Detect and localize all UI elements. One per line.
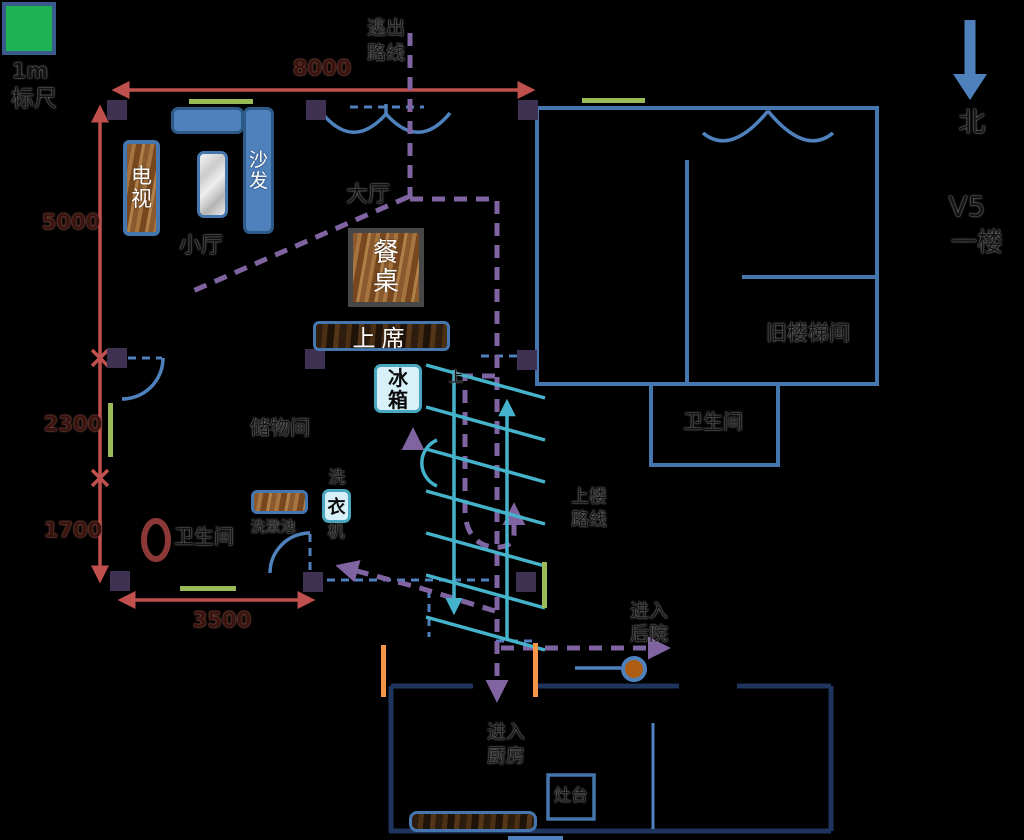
window-bar [542,562,547,608]
floor-label: 一楼 [951,229,1003,259]
column [517,350,537,370]
door-jamb [381,645,386,697]
enter-kitchen-label-2: 厨房 [487,746,525,768]
bottom-window-bar [508,836,563,840]
room-label-bathroom-right: 卫生间 [683,411,743,434]
scale-swatch [2,2,56,55]
window-bar [582,98,645,103]
sofa-horizontal [171,107,244,134]
column [107,100,127,120]
escape-route-top [410,33,497,199]
column [303,572,323,592]
dimension-top-label: 8000 [293,56,351,80]
wash-basin [251,490,308,514]
escape-route-label-2: 路线 [367,43,405,65]
well-circle [623,658,645,680]
fridge-label: 冰箱 [386,367,410,411]
column [518,100,538,120]
door-jamb [533,643,538,697]
dimension-left-lower-label: 1700 [44,518,102,542]
floor-plan-canvas: 1m 标尺 北 V5 一楼 8000 5000 2300 1700 3500 逃… [0,0,1024,840]
upstairs-route-label-2: 路线 [571,511,607,532]
column [107,348,127,368]
head-seat-bench: 上席 [313,321,450,351]
dining-table-label: 餐桌 [371,239,402,296]
kitchen-outline [389,686,831,831]
washer-label-mid: 衣 [328,493,346,519]
column [305,349,325,369]
dining-table: 餐桌 [348,228,424,307]
room-label-old-stairwell: 旧楼梯间 [766,321,850,345]
wash-basin-label: 洗漱池 [250,518,295,535]
column [516,572,536,592]
dimension-left-middle-label: 2300 [44,412,102,436]
door-arc-west [122,358,163,399]
washer-label-bottom: 机 [328,523,345,543]
washing-machine: 衣 [322,489,351,523]
dimension-bottom-label: 3500 [193,608,251,632]
enter-backyard-label-1: 进入 [630,601,668,623]
tea-table [197,151,228,218]
enter-backyard-label-2: 后院 [630,624,668,646]
dimension-left-upper-label: 5000 [42,210,100,234]
tv-label: 电视 [129,165,154,211]
tv-cabinet: 电视 [123,140,160,236]
double-door-right-building [703,111,833,141]
fridge: 冰箱 [374,364,422,413]
stove-label: 灶台 [554,787,588,807]
head-seat-label: 上席 [353,319,411,353]
door-arc-bathroom [270,533,310,573]
north-label: 北 [959,107,986,138]
north-arrow-icon [953,20,987,100]
scale-value-label: 1m [12,59,49,83]
window-bar [180,586,236,591]
column [306,100,326,120]
upstairs-route-label-1: 上楼 [571,488,607,509]
room-label-storage: 储物间 [250,417,310,440]
doors [122,104,833,573]
sofa-vertical: 沙发 [243,107,274,234]
kitchen-walls [389,686,831,831]
room-label-bathroom-left: 卫生间 [174,526,234,549]
escape-route-label-1: 逃出 [367,18,405,40]
scale-name-label: 标尺 [11,86,57,112]
washer-label-top: 洗 [329,469,346,489]
version-label: V5 [949,191,986,223]
room-label-small-hall: 小厅 [179,233,223,258]
stairs-up-mark: 上 [448,368,463,385]
wall-openings-dashed [128,107,535,641]
toilet-icon [144,521,168,559]
kitchen-counter [409,811,537,832]
sofa-label: 沙发 [247,150,269,192]
column [110,571,130,591]
room-label-main-hall: 大厅 [346,182,390,207]
stair-turn-arc [422,440,437,486]
window-bar [189,99,253,104]
plan-linework [0,0,1024,840]
window-bar [108,403,113,457]
enter-kitchen-label-1: 进入 [487,722,525,744]
